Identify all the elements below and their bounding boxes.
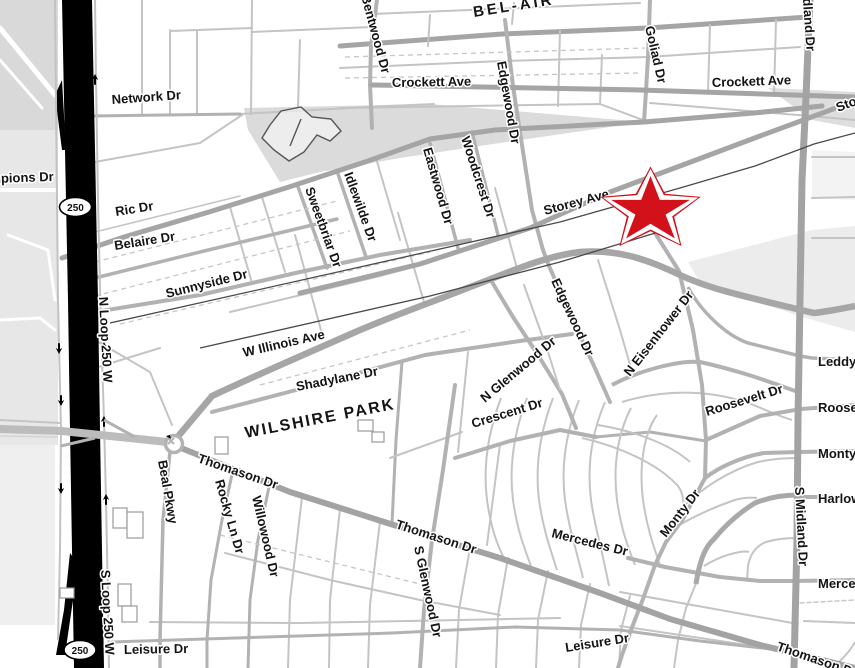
svg-text:Monty Dr: Monty Dr xyxy=(818,446,855,461)
svg-text:Crockett Ave: Crockett Ave xyxy=(392,74,471,90)
svg-text:250: 250 xyxy=(72,646,89,657)
svg-text:Crockett Ave: Crockett Ave xyxy=(712,72,792,90)
svg-text:250: 250 xyxy=(67,203,84,214)
svg-text:Harlow Dr: Harlow Dr xyxy=(818,491,855,506)
svg-text:Leisure Dr: Leisure Dr xyxy=(124,641,189,657)
svg-text:Mercedes: Mercedes xyxy=(818,576,855,591)
svg-text:Roosevelt: Roosevelt xyxy=(818,400,855,415)
svg-text:Leddy Dr: Leddy Dr xyxy=(818,354,855,369)
